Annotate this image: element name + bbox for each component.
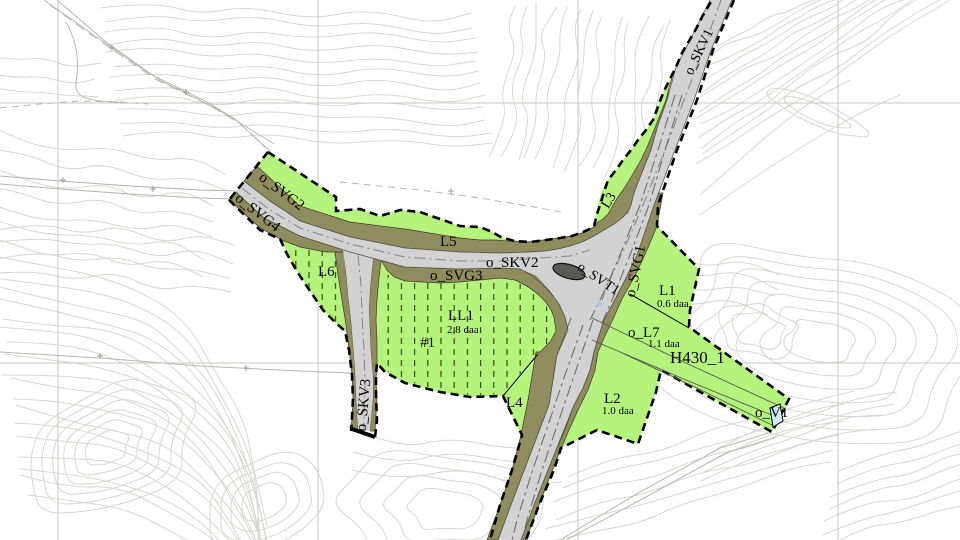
svg-text:L6: L6 <box>318 264 335 280</box>
svg-text:#1: #1 <box>420 335 435 351</box>
svg-text:2,8 daa: 2,8 daa <box>447 324 479 336</box>
svg-text:L5: L5 <box>440 234 457 250</box>
svg-text:L1: L1 <box>659 283 676 299</box>
svg-text:1.0 daa: 1.0 daa <box>602 405 634 417</box>
svg-text:0.6 daa: 0.6 daa <box>657 298 689 310</box>
svg-text:LL1: LL1 <box>448 308 474 324</box>
svg-text:H430_1: H430_1 <box>670 348 725 367</box>
svg-text:L4: L4 <box>506 395 523 411</box>
svg-text:1.1 daa: 1.1 daa <box>648 338 680 350</box>
svg-text:o_SKV2: o_SKV2 <box>486 255 539 271</box>
svg-text:o_SVG3: o_SVG3 <box>430 268 483 284</box>
svg-text:o_V1: o_V1 <box>755 405 788 421</box>
